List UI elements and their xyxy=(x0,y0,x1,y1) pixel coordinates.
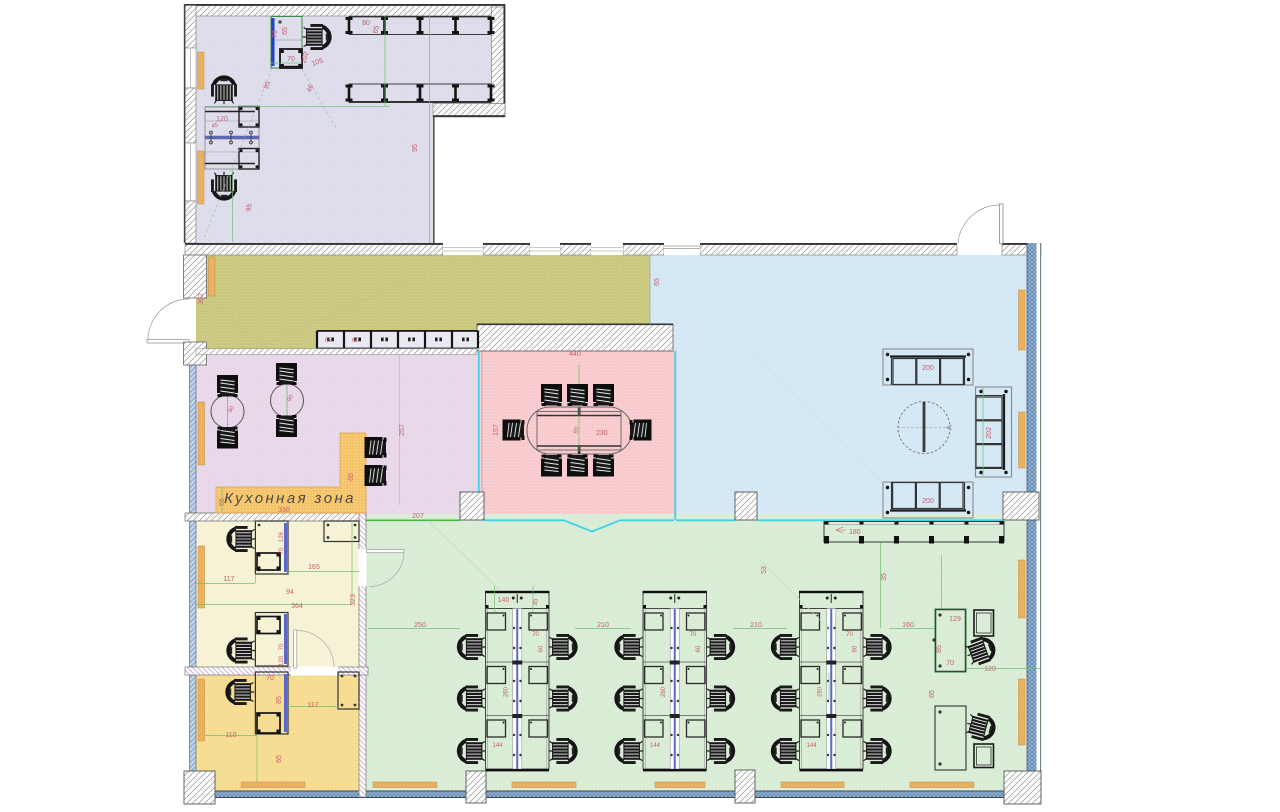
svg-text:144: 144 xyxy=(806,743,817,749)
svg-text:70: 70 xyxy=(287,56,295,63)
svg-text:80: 80 xyxy=(362,20,370,27)
svg-text:440: 440 xyxy=(569,351,581,358)
svg-text:160: 160 xyxy=(902,622,914,629)
svg-text:157: 157 xyxy=(493,424,500,436)
svg-text:70: 70 xyxy=(272,30,279,38)
svg-text:180: 180 xyxy=(849,529,861,536)
svg-text:65: 65 xyxy=(219,498,226,506)
svg-text:250: 250 xyxy=(414,622,426,629)
svg-text:260: 260 xyxy=(818,686,824,697)
svg-text:202: 202 xyxy=(986,427,993,439)
svg-text:230: 230 xyxy=(596,430,608,437)
svg-text:65: 65 xyxy=(325,338,332,344)
svg-text:129: 129 xyxy=(949,616,961,623)
svg-text:117: 117 xyxy=(223,576,234,583)
svg-text:65: 65 xyxy=(929,690,936,698)
svg-text:70: 70 xyxy=(279,547,285,554)
svg-text:260: 260 xyxy=(661,686,667,697)
svg-text:53: 53 xyxy=(761,566,768,574)
svg-text:65: 65 xyxy=(654,278,661,286)
svg-text:260: 260 xyxy=(504,686,510,697)
svg-text:65: 65 xyxy=(282,27,289,35)
svg-text:144: 144 xyxy=(650,743,661,749)
svg-text:65: 65 xyxy=(276,755,283,763)
svg-text:110: 110 xyxy=(225,732,236,739)
svg-text:200: 200 xyxy=(922,365,934,372)
svg-text:323: 323 xyxy=(350,594,357,606)
svg-text:35: 35 xyxy=(881,573,888,581)
svg-text:117: 117 xyxy=(307,702,318,709)
svg-text:200: 200 xyxy=(922,498,934,505)
svg-text:210: 210 xyxy=(750,622,762,629)
svg-text:65: 65 xyxy=(348,473,355,481)
svg-text:60: 60 xyxy=(853,645,859,652)
svg-text:144: 144 xyxy=(492,743,503,749)
svg-text:126: 126 xyxy=(279,531,285,542)
svg-text:364: 364 xyxy=(291,603,303,610)
svg-text:140: 140 xyxy=(498,597,510,604)
svg-text:302: 302 xyxy=(198,293,205,305)
svg-text:95: 95 xyxy=(412,144,419,152)
svg-text:257: 257 xyxy=(399,424,406,436)
svg-text:70: 70 xyxy=(532,632,539,638)
svg-text:165: 165 xyxy=(308,564,320,571)
svg-text:336: 336 xyxy=(278,507,290,514)
svg-text:95: 95 xyxy=(245,203,253,212)
svg-text:70: 70 xyxy=(690,632,697,638)
svg-text:Кухонная зона: Кухонная зона xyxy=(224,490,356,507)
svg-text:70: 70 xyxy=(946,660,954,667)
svg-text:120: 120 xyxy=(216,116,228,123)
svg-text:45: 45 xyxy=(534,598,540,605)
svg-text:85: 85 xyxy=(276,696,283,704)
svg-text:120: 120 xyxy=(279,655,285,666)
svg-text:60: 60 xyxy=(696,645,702,652)
svg-text:70: 70 xyxy=(266,675,274,682)
svg-text:70: 70 xyxy=(846,632,853,638)
svg-text:85: 85 xyxy=(936,645,943,653)
svg-text:207: 207 xyxy=(412,513,424,520)
svg-text:60: 60 xyxy=(352,338,359,344)
svg-text:94: 94 xyxy=(286,589,294,596)
svg-text:70: 70 xyxy=(279,643,285,650)
svg-text:210: 210 xyxy=(597,622,609,629)
svg-text:120: 120 xyxy=(984,666,996,673)
svg-text:60: 60 xyxy=(539,645,545,652)
